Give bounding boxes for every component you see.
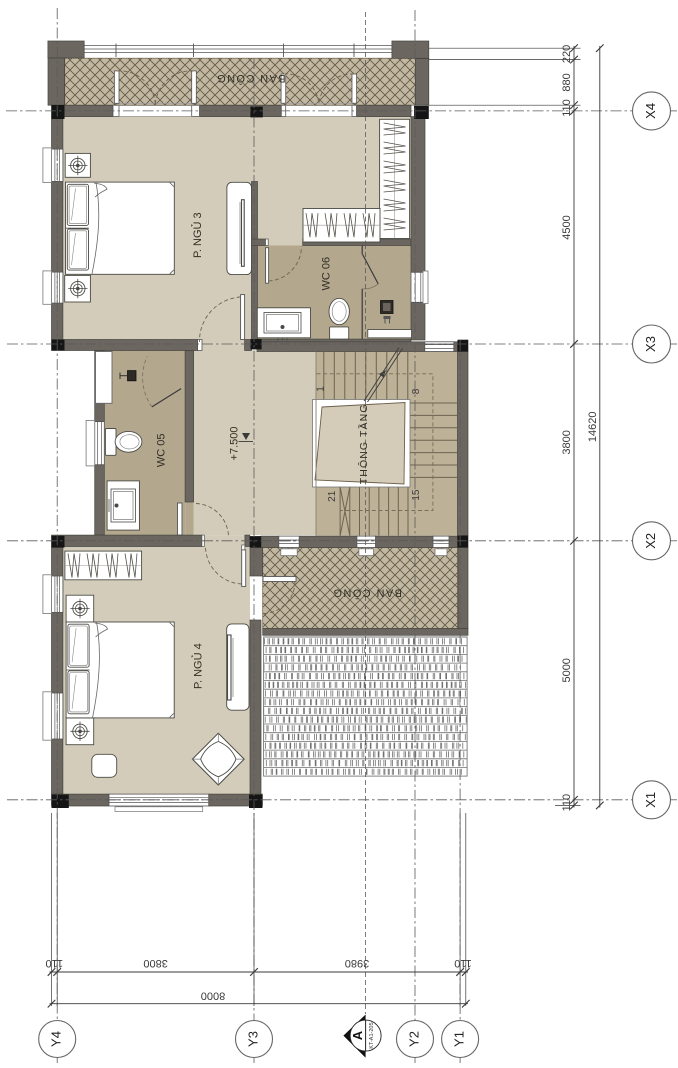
svg-text:3800: 3800 xyxy=(143,957,167,969)
svg-text:110: 110 xyxy=(561,99,573,117)
svg-text:WC 06: WC 06 xyxy=(321,257,333,291)
svg-text:P. NGỦ 4: P. NGỦ 4 xyxy=(191,643,204,689)
svg-text:X1: X1 xyxy=(643,792,658,808)
svg-text:3800: 3800 xyxy=(561,430,573,454)
svg-text:15: 15 xyxy=(411,489,422,501)
svg-text:8000: 8000 xyxy=(201,989,225,1001)
svg-text:21: 21 xyxy=(327,490,338,502)
svg-text:BAN CÔNG: BAN CÔNG xyxy=(332,586,402,599)
svg-text:3980: 3980 xyxy=(345,957,369,969)
svg-text:A: A xyxy=(350,1030,365,1040)
svg-text:+7.500: +7.500 xyxy=(228,427,240,461)
svg-text:WC 05: WC 05 xyxy=(155,433,167,467)
svg-text:X3: X3 xyxy=(643,336,658,352)
svg-text:4500: 4500 xyxy=(561,215,573,239)
svg-text:Y2: Y2 xyxy=(406,1031,421,1047)
svg-text:X4: X4 xyxy=(643,103,658,119)
svg-text:Y3: Y3 xyxy=(245,1031,260,1047)
svg-text:Y1: Y1 xyxy=(452,1031,467,1047)
svg-text:THÔNG TẦNG: THÔNG TẦNG xyxy=(357,403,370,484)
svg-text:1: 1 xyxy=(316,386,327,392)
svg-text:110: 110 xyxy=(561,794,573,812)
svg-text:Y4: Y4 xyxy=(49,1031,64,1047)
svg-text:5000: 5000 xyxy=(561,658,573,682)
svg-text:14620: 14620 xyxy=(587,412,599,443)
svg-text:X2: X2 xyxy=(643,533,658,549)
svg-text:P. NGỦ 3: P. NGỦ 3 xyxy=(191,212,204,258)
svg-text:220: 220 xyxy=(561,45,573,63)
svg-text:KT-A1-205: KT-A1-205 xyxy=(369,1022,375,1048)
svg-text:110: 110 xyxy=(454,957,472,969)
svg-text:BAN CÔNG: BAN CÔNG xyxy=(216,72,286,85)
svg-text:110: 110 xyxy=(46,957,64,969)
svg-text:880: 880 xyxy=(561,73,573,91)
svg-text:8: 8 xyxy=(411,388,422,394)
